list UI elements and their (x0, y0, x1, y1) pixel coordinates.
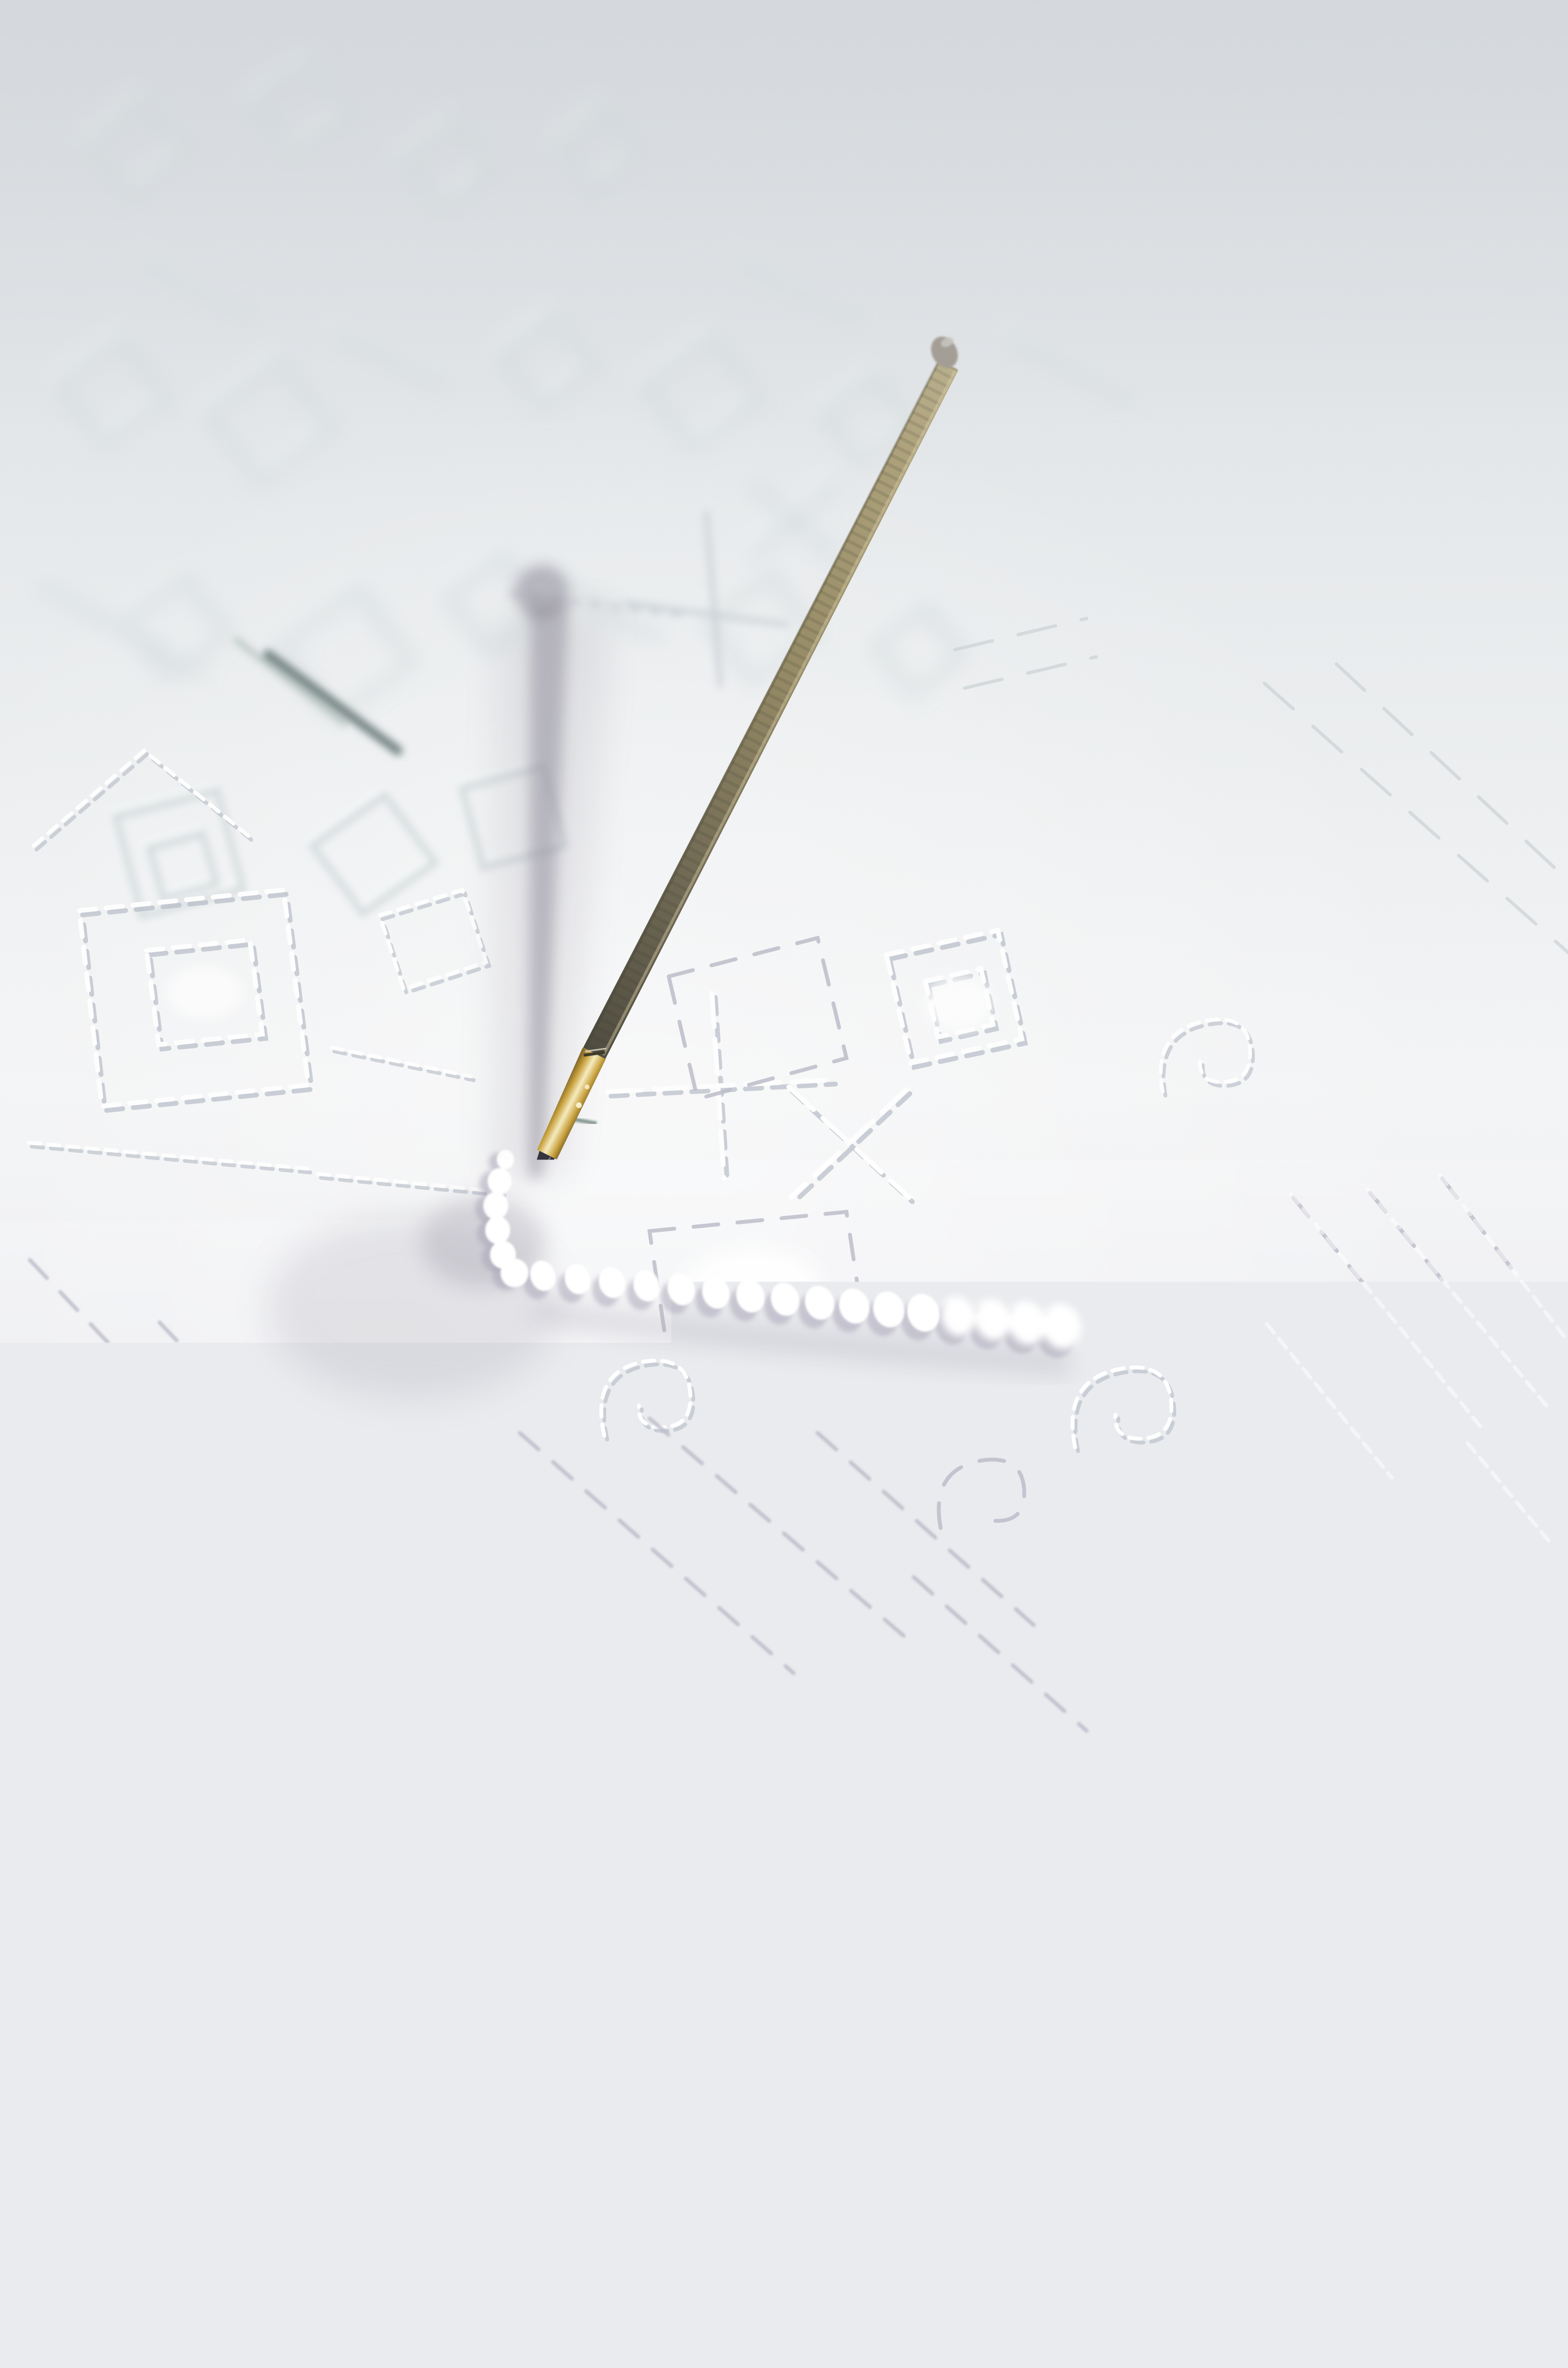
embroidery-photo (0, 0, 1568, 2368)
bottom-vignette (0, 1562, 1568, 2368)
top-vignette (0, 0, 1568, 456)
